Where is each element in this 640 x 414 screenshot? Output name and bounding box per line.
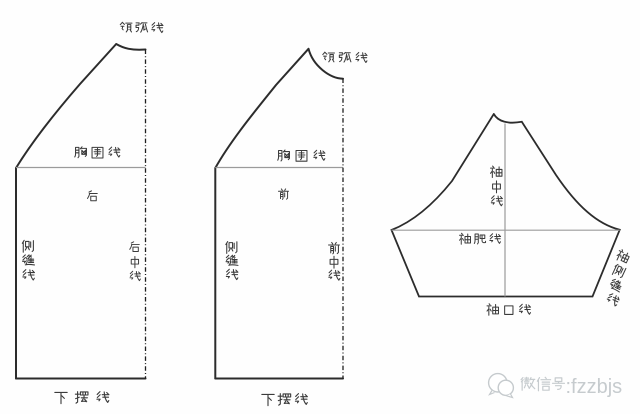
svg-text::fzzbjs: :fzzbjs — [566, 376, 623, 398]
